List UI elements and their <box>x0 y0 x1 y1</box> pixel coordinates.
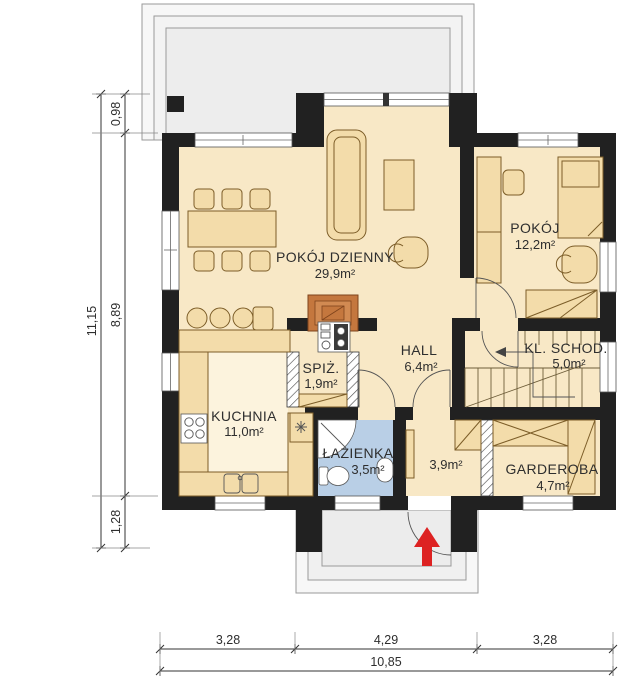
label-bathroom: ŁAZIENKA <box>323 445 394 461</box>
bed <box>558 157 603 238</box>
area-pantry: 1,9m² <box>304 376 338 391</box>
chair <box>250 189 270 209</box>
window-living-left <box>162 211 179 290</box>
porch-pillar-right <box>451 510 477 552</box>
area-staircase: 5,0m² <box>552 356 586 371</box>
area-kitchen: 11,0m² <box>224 424 264 439</box>
pantry-shelf <box>299 394 347 407</box>
label-pantry: SPIŻ. <box>302 359 339 376</box>
label-bedroom: POKÓJ <box>510 220 559 236</box>
dim-bottom-total: 10,85 <box>370 655 401 669</box>
window-wardrobe-bottom <box>523 496 573 510</box>
wall-bath-right <box>393 420 406 496</box>
cooktop <box>181 414 207 443</box>
entrance-porch <box>296 510 478 593</box>
fridge <box>290 413 313 442</box>
area-bathroom: 3,5m² <box>351 462 385 477</box>
sofa <box>327 130 366 240</box>
dim-terrace-depth: 0,98 <box>109 102 123 126</box>
area-wardrobe: 4,7m² <box>536 478 570 493</box>
window-bay <box>324 93 449 106</box>
kitchenette-unit <box>318 322 350 352</box>
dim-left-total: 11,15 <box>85 306 99 336</box>
label-kitchen: KUCHNIA <box>211 408 277 424</box>
side-table <box>384 160 414 210</box>
kitchen-bar-counter <box>179 330 290 352</box>
chair <box>250 251 270 271</box>
area-vestibule: 3,9m² <box>429 457 463 472</box>
bay-pillar-right <box>449 93 477 147</box>
wardrobe-bedroom <box>526 290 597 318</box>
wall-hall-south <box>305 407 602 420</box>
porch-pillar-left <box>296 510 322 552</box>
vestibule-wardrobe <box>455 420 481 450</box>
chair <box>222 251 242 271</box>
chair <box>194 189 214 209</box>
label-hall: HALL <box>401 342 438 358</box>
dim-bottom-right: 3,28 <box>533 633 557 647</box>
kitchen-counter-bottom <box>179 472 288 496</box>
dining-table <box>188 211 276 247</box>
wall-hall-stairs <box>452 331 465 420</box>
area-bedroom: 12,2m² <box>515 237 556 252</box>
partition-vestibule-wardrobe <box>481 420 493 496</box>
chair <box>194 251 214 271</box>
label-staircase: KL. SCHOD. <box>524 340 607 356</box>
partition-pantry-right <box>347 352 359 407</box>
toilet <box>319 467 349 486</box>
floor-plan-page: POKÓJ DZIENNY 29,9m² POKÓJ 12,2m² KUCHNI… <box>0 0 634 679</box>
area-living-room: 29,9m² <box>315 266 356 281</box>
wardrobe-top-unit <box>493 420 568 446</box>
wardrobe-right-unit <box>568 420 595 494</box>
kitchen-counter-left <box>179 352 208 472</box>
wall-living-bedroom <box>460 147 474 278</box>
wall-left <box>162 133 179 510</box>
chair <box>222 189 242 209</box>
label-living-room: POKÓJ DZIENNY <box>276 249 394 265</box>
dim-bottom-left: 3,28 <box>216 633 240 647</box>
entrance-opening <box>408 496 451 510</box>
window-bedroom-right <box>600 242 616 292</box>
area-hall: 6,4m² <box>404 359 438 374</box>
label-wardrobe: GARDEROBA <box>505 461 598 477</box>
floor-plan-drawing: POKÓJ DZIENNY 29,9m² POKÓJ 12,2m² KUCHNI… <box>0 0 634 679</box>
window-bathroom-bottom <box>335 496 380 510</box>
window-kitchen-bottom <box>215 496 265 510</box>
terrace-pillar <box>167 96 184 112</box>
partition-pantry-left <box>287 352 299 407</box>
dim-porch-depth: 1,28 <box>109 510 123 534</box>
dining-set <box>188 189 276 271</box>
desk-chair <box>503 170 524 195</box>
window-bedroom-top <box>518 133 578 147</box>
vestibule-bench <box>406 430 414 478</box>
window-kitchen-left <box>162 353 179 391</box>
dim-body-depth: 8,89 <box>109 303 123 327</box>
window-living-top <box>195 133 292 147</box>
dim-bottom-center: 4,29 <box>374 633 398 647</box>
bay-pillar-left <box>296 93 324 147</box>
